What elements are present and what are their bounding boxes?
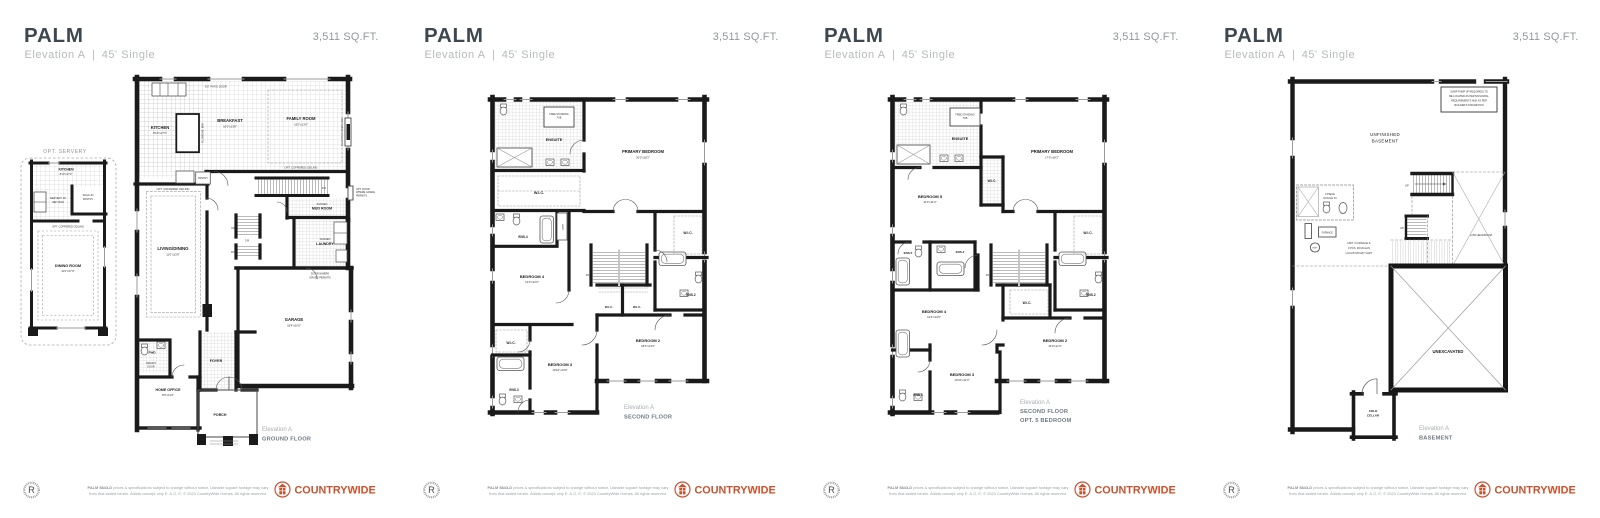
svg-text:W.I.C.: W.I.C. <box>605 305 613 309</box>
svg-text:15'0"x13'0": 15'0"x13'0" <box>294 123 308 127</box>
svg-text:LIVING/DINING: LIVING/DINING <box>157 246 189 251</box>
svg-text:SUNKEN: SUNKEN <box>320 237 331 241</box>
svg-text:3 PCS. ROUGH-IN: 3 PCS. ROUGH-IN <box>1348 246 1370 250</box>
svg-text:BEDROOM 4: BEDROOM 4 <box>922 309 947 314</box>
svg-text:FURNACE: FURNACE <box>1322 232 1334 235</box>
svg-text:PRIMARY BEDROOM: PRIMARY BEDROOM <box>622 149 665 154</box>
svg-text:HWT: HWT <box>1313 248 1319 250</box>
svg-text:SUMP PUMP (IF REQUIRED) TO: SUMP PUMP (IF REQUIRED) TO <box>1450 91 1488 94</box>
svg-text:PALM 5843-D prices & specifica: PALM 5843-D prices & specifications subj… <box>88 485 269 490</box>
svg-text:LAUNDRY: LAUNDRY <box>316 242 334 246</box>
svg-text:PALM: PALM <box>24 24 84 47</box>
svg-text:UNFINISHED: UNFINISHED <box>1370 132 1400 137</box>
svg-text:BASEMENT: BASEMENT <box>1419 436 1453 442</box>
svg-text:BE LOCATED AS PER MUNICIPAL: BE LOCATED AS PER MUNICIPAL <box>1449 95 1489 98</box>
svg-text:LOW HEADROOM: LOW HEADROOM <box>1470 233 1492 237</box>
svg-text:TUB: TUB <box>963 117 968 120</box>
svg-text:10'0"x13'0": 10'0"x13'0" <box>223 125 237 129</box>
svg-text:BUILDER'S DISCRETION: BUILDER'S DISCRETION <box>1454 104 1483 107</box>
svg-text:DN: DN <box>322 186 326 190</box>
svg-text:SUNKEN: SUNKEN <box>317 202 328 206</box>
svg-text:3 R: 3 R <box>245 239 249 243</box>
svg-text:8'0"x11'0": 8'0"x11'0" <box>162 393 174 397</box>
svg-text:SECOND FLOOR: SECOND FLOOR <box>1020 409 1068 415</box>
svg-text:PERMITS: PERMITS <box>356 194 367 197</box>
svg-text:KITCHEN: KITCHEN <box>151 125 170 130</box>
svg-text:PRIMARY BEDROOM: PRIMARY BEDROOM <box>1031 149 1074 154</box>
svg-text:BEDROOM 2: BEDROOM 2 <box>636 338 661 343</box>
svg-text:12'4"x10'0": 12'4"x10'0" <box>927 315 941 319</box>
svg-text:BEDROOM 4: BEDROOM 4 <box>520 274 545 279</box>
svg-text:17'0"x18'2": 17'0"x18'2" <box>1045 156 1059 160</box>
svg-text:ENS.2: ENS.2 <box>1086 293 1095 297</box>
svg-text:ENSUITE: ENSUITE <box>546 138 563 142</box>
svg-text:PL. BREAK. BAR: PL. BREAK. BAR <box>201 123 205 143</box>
svg-text:11'0"x11'0": 11'0"x11'0" <box>923 200 936 204</box>
svg-text:Elevation A: Elevation A <box>262 427 292 433</box>
svg-text:FREE STANDING: FREE STANDING <box>549 113 568 116</box>
svg-text:UP: UP <box>1405 184 1409 188</box>
svg-text:KITCHEN: KITCHEN <box>58 168 74 172</box>
svg-text:PANTRY: PANTRY <box>198 177 208 180</box>
svg-text:8'10"x17'0": 8'10"x17'0" <box>60 172 73 176</box>
svg-text:HOME OFFICE: HOME OFFICE <box>156 388 182 392</box>
svg-text:BEDROOM 3: BEDROOM 3 <box>548 362 573 367</box>
svg-text:MUD ROOM: MUD ROOM <box>312 207 332 211</box>
svg-text:OPT. COFFERED CEILING: OPT. COFFERED CEILING <box>52 225 84 229</box>
svg-text:W.I.C.: W.I.C. <box>534 191 544 195</box>
svg-text:ENS.4: ENS.4 <box>956 250 965 254</box>
svg-text:R: R <box>28 485 35 495</box>
svg-text:OPT. 5 BEDROOM: OPT. 5 BEDROOM <box>1020 418 1072 424</box>
svg-text:FOYER: FOYER <box>210 359 223 363</box>
svg-text:OPT. COFFERED CEILING: OPT. COFFERED CEILING <box>157 187 190 191</box>
svg-text:3 PIECE: 3 PIECE <box>1325 192 1335 196</box>
svg-text:W.I.C.: W.I.C. <box>988 179 997 183</box>
svg-text:BASEMENT: BASEMENT <box>1372 139 1399 144</box>
svg-text:PORCH: PORCH <box>214 413 227 417</box>
svg-text:UP: UP <box>1400 226 1404 230</box>
svg-text:W.I.C.: W.I.C. <box>1083 231 1092 235</box>
svg-text:BEDROOM 2: BEDROOM 2 <box>1043 338 1068 343</box>
svg-text:Elevation A: Elevation A <box>1419 426 1449 432</box>
svg-text:DN: DN <box>586 273 590 277</box>
svg-text:FAMILY ROOM: FAMILY ROOM <box>286 116 316 121</box>
svg-text:20'0"x18'2": 20'0"x18'2" <box>636 156 650 160</box>
svg-text:16'0"x11'0": 16'0"x11'0" <box>1048 344 1062 348</box>
svg-text:11'0"x17'0": 11'0"x17'0" <box>61 269 75 273</box>
svg-text:BEDROOM 5: BEDROOM 5 <box>918 194 943 199</box>
svg-text:8'0" PATIO DOOR: 8'0" PATIO DOOR <box>205 85 227 89</box>
svg-text:10'10"x13'0": 10'10"x13'0" <box>552 368 567 372</box>
svg-text:SECOND FLOOR: SECOND FLOOR <box>624 415 672 421</box>
svg-text:COUNTRYWIDE: COUNTRYWIDE <box>295 484 376 496</box>
svg-text:Elevation A | 45' Single: Elevation A | 45' Single <box>25 49 156 61</box>
svg-text:DOOR: DOOR <box>147 365 154 368</box>
svg-text:SERVERY W/: SERVERY W/ <box>50 196 66 200</box>
svg-text:W.I.C.: W.I.C. <box>683 231 692 235</box>
svg-text:GRADE PERMITS: GRADE PERMITS <box>309 275 331 279</box>
svg-text:BEDROOM 3: BEDROOM 3 <box>950 372 975 377</box>
svg-text:18'4"x20'0": 18'4"x20'0" <box>287 324 301 328</box>
svg-text:DN: DN <box>986 273 990 277</box>
svg-text:from that stated herein. Artis: from that stated herein. Artists concept… <box>89 491 267 496</box>
svg-text:BREAKFAST: BREAKFAST <box>217 118 243 123</box>
svg-text:LINEN: LINEN <box>563 223 565 230</box>
svg-text:ENS.3: ENS.3 <box>509 388 518 392</box>
svg-text:ENS.3: ENS.3 <box>913 393 922 397</box>
svg-text:12'0"x12'0": 12'0"x12'0" <box>525 280 539 284</box>
svg-text:11'0"x23'0": 11'0"x23'0" <box>166 253 180 257</box>
svg-text:Elevation A: Elevation A <box>1020 400 1050 406</box>
svg-text:ENS.2: ENS.2 <box>686 293 695 297</box>
svg-text:ENSUITE: ENSUITE <box>952 137 969 141</box>
svg-text:WET BAR: WET BAR <box>52 200 64 204</box>
svg-text:ENS.4: ENS.4 <box>518 235 527 239</box>
svg-text:DINING ROOM: DINING ROOM <box>55 264 81 268</box>
svg-text:TUB: TUB <box>557 117 562 120</box>
svg-text:PWD: PWD <box>149 351 157 355</box>
svg-text:HWT / FURNACE &: HWT / FURNACE & <box>1347 241 1370 245</box>
svg-text:UNEXCAVATED: UNEXCAVATED <box>1433 349 1464 354</box>
svg-text:ENS.5: ENS.5 <box>904 251 913 255</box>
svg-text:GARAGE: GARAGE <box>285 317 304 322</box>
svg-text:DOOR WHERE: DOOR WHERE <box>311 272 329 276</box>
svg-text:GROUND FLOOR: GROUND FLOOR <box>262 437 311 443</box>
svg-text:18'4"x13'0": 18'4"x13'0" <box>641 344 655 348</box>
svg-text:W.I.C.: W.I.C. <box>633 305 641 309</box>
svg-text:10'10"x11'0": 10'10"x11'0" <box>954 378 969 382</box>
svg-text:3,511 SQ.FT.: 3,511 SQ.FT. <box>313 31 379 43</box>
svg-text:Elevation A: Elevation A <box>624 405 654 411</box>
svg-text:ROUGH IN: ROUGH IN <box>1324 196 1337 200</box>
svg-text:UP: UP <box>231 226 235 230</box>
svg-text:OPT. COFFERED CEILING: OPT. COFFERED CEILING <box>285 166 318 170</box>
svg-text:W.I.C.: W.I.C. <box>506 341 515 345</box>
svg-text:W.I.C.: W.I.C. <box>1023 301 1032 305</box>
svg-text:8'10"x17'0": 8'10"x17'0" <box>153 131 167 135</box>
svg-text:WALK-IN: WALK-IN <box>83 193 94 197</box>
svg-text:CELLAR: CELLAR <box>1367 414 1380 418</box>
svg-text:PANTRY: PANTRY <box>83 197 94 201</box>
svg-text:COLD: COLD <box>1369 409 1378 413</box>
svg-text:DN: DN <box>231 250 235 254</box>
svg-text:LOCATION MAY VARY: LOCATION MAY VARY <box>1346 251 1373 255</box>
svg-text:OPT. SERVERY: OPT. SERVERY <box>43 149 86 155</box>
svg-text:REQUIREMENTS AND AS PER: REQUIREMENTS AND AS PER <box>1451 100 1487 103</box>
